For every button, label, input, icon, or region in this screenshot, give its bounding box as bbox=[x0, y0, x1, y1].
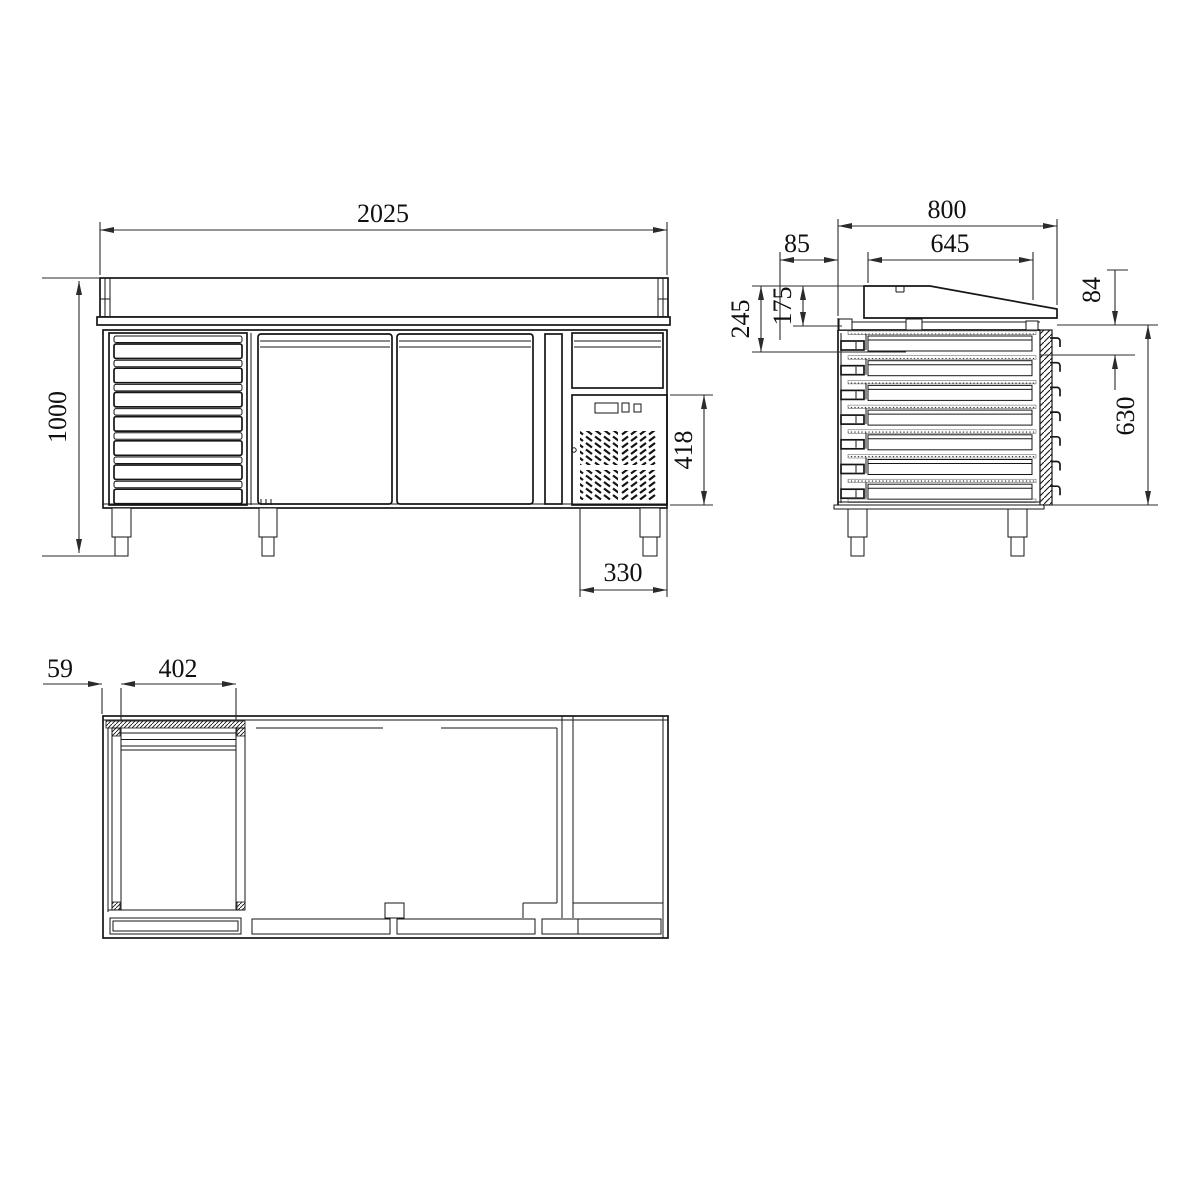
drawer-front-section-hatch bbox=[106, 721, 245, 728]
slide-rail bbox=[848, 331, 1036, 335]
legs-side bbox=[848, 509, 1027, 556]
slide-rail bbox=[848, 455, 1036, 459]
drawing-canvas: 2025 1000 418 330 bbox=[0, 0, 1200, 1200]
drawer-tray bbox=[868, 460, 1032, 475]
drawer-front-bracket bbox=[841, 489, 864, 498]
dim-plan-drawer-width: 402 bbox=[121, 654, 236, 721]
dim-label-side-depth: 800 bbox=[928, 195, 967, 224]
drawer-front-bracket bbox=[841, 366, 864, 375]
dim-plan-wall-offset: 59 bbox=[43, 654, 102, 714]
plan-view: 59 402 bbox=[43, 654, 668, 938]
drawer-stack-side bbox=[841, 331, 1060, 503]
dim-side-step: 84 bbox=[1040, 270, 1135, 390]
dim-label-front-height: 1000 bbox=[43, 391, 72, 443]
slide-rail bbox=[848, 356, 1036, 360]
door-divider-tab bbox=[385, 903, 404, 918]
dim-label-side-overhang: 85 bbox=[784, 229, 810, 258]
slide-rail-right bbox=[236, 728, 245, 910]
dim-label-side-riser-height: 175 bbox=[768, 287, 797, 326]
drawer-front-bracket bbox=[841, 390, 864, 399]
drawer-front-bracket bbox=[841, 415, 864, 424]
dim-label-side-body-height: 630 bbox=[1111, 397, 1140, 436]
drawer-tray bbox=[868, 336, 1032, 351]
dim-label-side-top-depth: 645 bbox=[931, 229, 970, 258]
plan-main-cavity bbox=[256, 728, 557, 918]
drawer-front-bracket bbox=[841, 341, 864, 350]
drawer-front-bracket bbox=[841, 465, 864, 474]
worktop-edge bbox=[97, 317, 670, 325]
base-rail bbox=[834, 505, 1044, 509]
front-view: 2025 1000 418 330 bbox=[42, 199, 713, 597]
drawer-tray bbox=[868, 410, 1032, 425]
dim-label-side-step: 84 bbox=[1077, 277, 1106, 303]
slide-rail-left bbox=[112, 728, 121, 910]
drawer-tray bbox=[868, 484, 1032, 499]
top-bracket-left bbox=[839, 319, 852, 330]
slide-rail bbox=[848, 479, 1036, 483]
legs-front bbox=[112, 508, 660, 556]
drawer-tray bbox=[868, 361, 1032, 376]
sloped-worktop bbox=[864, 286, 1057, 318]
dim-front-width: 2025 bbox=[100, 199, 667, 275]
drawer-tray bbox=[868, 435, 1032, 450]
dim-condenser-height: 418 bbox=[669, 395, 713, 505]
slide-rail bbox=[848, 405, 1036, 409]
plinth-left bbox=[110, 918, 241, 934]
drawer-tray bbox=[868, 385, 1032, 400]
drawer-front-bracket bbox=[841, 440, 864, 449]
slide-rail bbox=[848, 380, 1036, 384]
top-bracket-mid bbox=[906, 319, 922, 330]
slide-rail bbox=[848, 430, 1036, 434]
side-view: 800 645 85 245 175 84 bbox=[726, 195, 1158, 556]
dim-label-plan-wall-offset: 59 bbox=[47, 654, 73, 683]
dim-label-front-width: 2025 bbox=[357, 199, 409, 228]
dim-label-condenser-width: 330 bbox=[604, 558, 643, 587]
drawing-sheet: 2025 1000 418 330 bbox=[0, 0, 1200, 1200]
plan-plinth-strips bbox=[252, 919, 661, 934]
dim-side-body-height: 630 bbox=[1048, 325, 1158, 505]
dim-label-condenser-height: 418 bbox=[669, 431, 698, 470]
top-bracket-right bbox=[1026, 321, 1038, 330]
riser-upstand bbox=[100, 278, 668, 317]
dim-label-plan-drawer-width: 402 bbox=[159, 654, 198, 683]
back-insulation-hatch bbox=[1040, 330, 1052, 505]
dim-label-side-top-height: 245 bbox=[726, 300, 755, 339]
plan-drawer-module bbox=[106, 721, 245, 934]
